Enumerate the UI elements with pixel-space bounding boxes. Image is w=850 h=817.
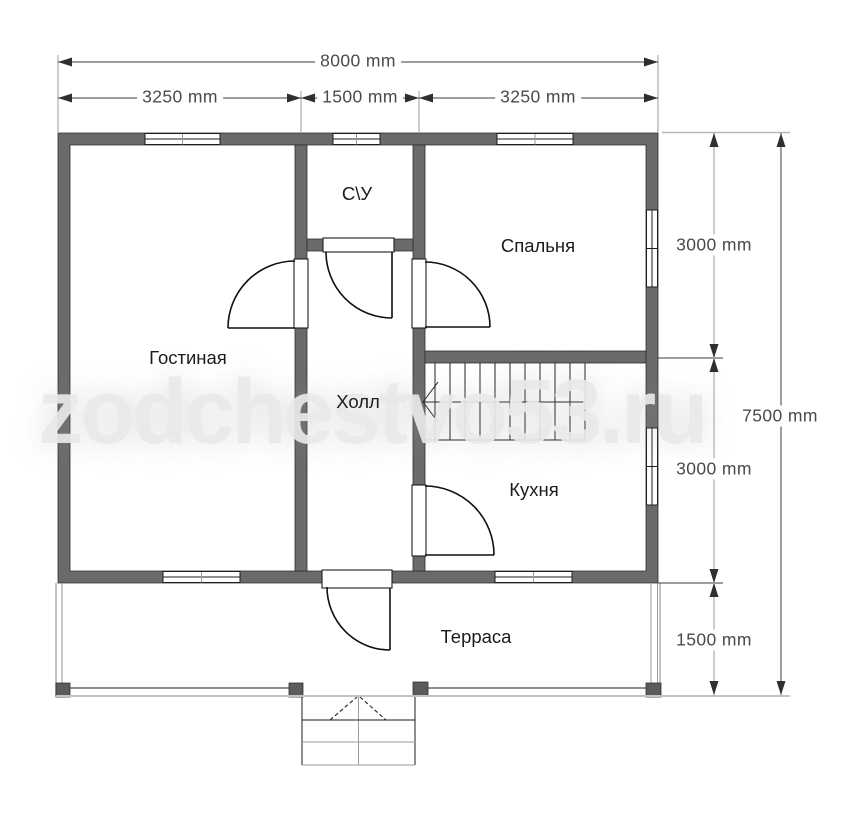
dim-label-top-middle: 1500 mm (317, 87, 403, 108)
wall-bathroom-left-stub (307, 239, 325, 251)
dim-label-top-right: 3250 mm (495, 87, 581, 108)
floor-plan-drawing (0, 0, 850, 817)
terrace-post (646, 683, 661, 697)
porch-steps (302, 696, 415, 765)
room-label-terrace: Терраса (441, 626, 512, 648)
dimension-right-segments (710, 133, 719, 695)
dim-label-right-middle: 3000 mm (671, 459, 757, 480)
door-kitchen (412, 485, 494, 556)
wall-hall-right-lower (413, 555, 425, 571)
porch-gable-mark (360, 697, 386, 720)
dim-label-total-height: 7500 mm (737, 406, 823, 427)
window-bedroom-top (497, 134, 573, 145)
terrace-post (56, 683, 70, 697)
porch-gable-mark (330, 697, 357, 720)
interior-walls (295, 145, 646, 571)
room-label-hall: Холл (336, 391, 380, 413)
window-living-top (145, 134, 220, 145)
dim-label-top-left: 3250 mm (137, 87, 223, 108)
door-bedroom (412, 259, 490, 328)
doors (228, 238, 494, 650)
window-bedroom-right (647, 210, 658, 287)
staircase (423, 363, 585, 440)
room-label-bathroom: С\У (342, 183, 372, 205)
room-label-bedroom: Спальня (501, 235, 575, 257)
terrace-post (413, 682, 428, 696)
door-living (228, 259, 308, 328)
room-label-kitchen: Кухня (509, 479, 559, 501)
wall-bathroom-right-stub (392, 239, 413, 251)
terrace-post (289, 683, 303, 697)
wall-hall-left-lower (295, 327, 307, 571)
window-living-bottom (163, 572, 240, 583)
window-kitchen-bottom (495, 572, 572, 583)
wall-hall-right-upper (413, 145, 425, 260)
door-terrace (322, 570, 392, 650)
terrace-outline (56, 583, 661, 697)
window-bathroom-top (333, 134, 380, 145)
floor-plan: zodchestvo53.ru Гостиная Холл С\У Спальн… (0, 0, 850, 817)
door-bathroom (323, 238, 394, 318)
wall-hall-right-middle (413, 327, 425, 486)
wall-bedroom-kitchen-divider (425, 351, 646, 363)
dim-label-right-upper: 3000 mm (671, 235, 757, 256)
dim-label-right-lower: 1500 mm (671, 630, 757, 651)
dim-label-total-width: 8000 mm (315, 51, 401, 72)
window-kitchen-right (647, 428, 658, 505)
wall-hall-left-upper (295, 145, 307, 260)
room-label-living: Гостиная (149, 347, 227, 369)
